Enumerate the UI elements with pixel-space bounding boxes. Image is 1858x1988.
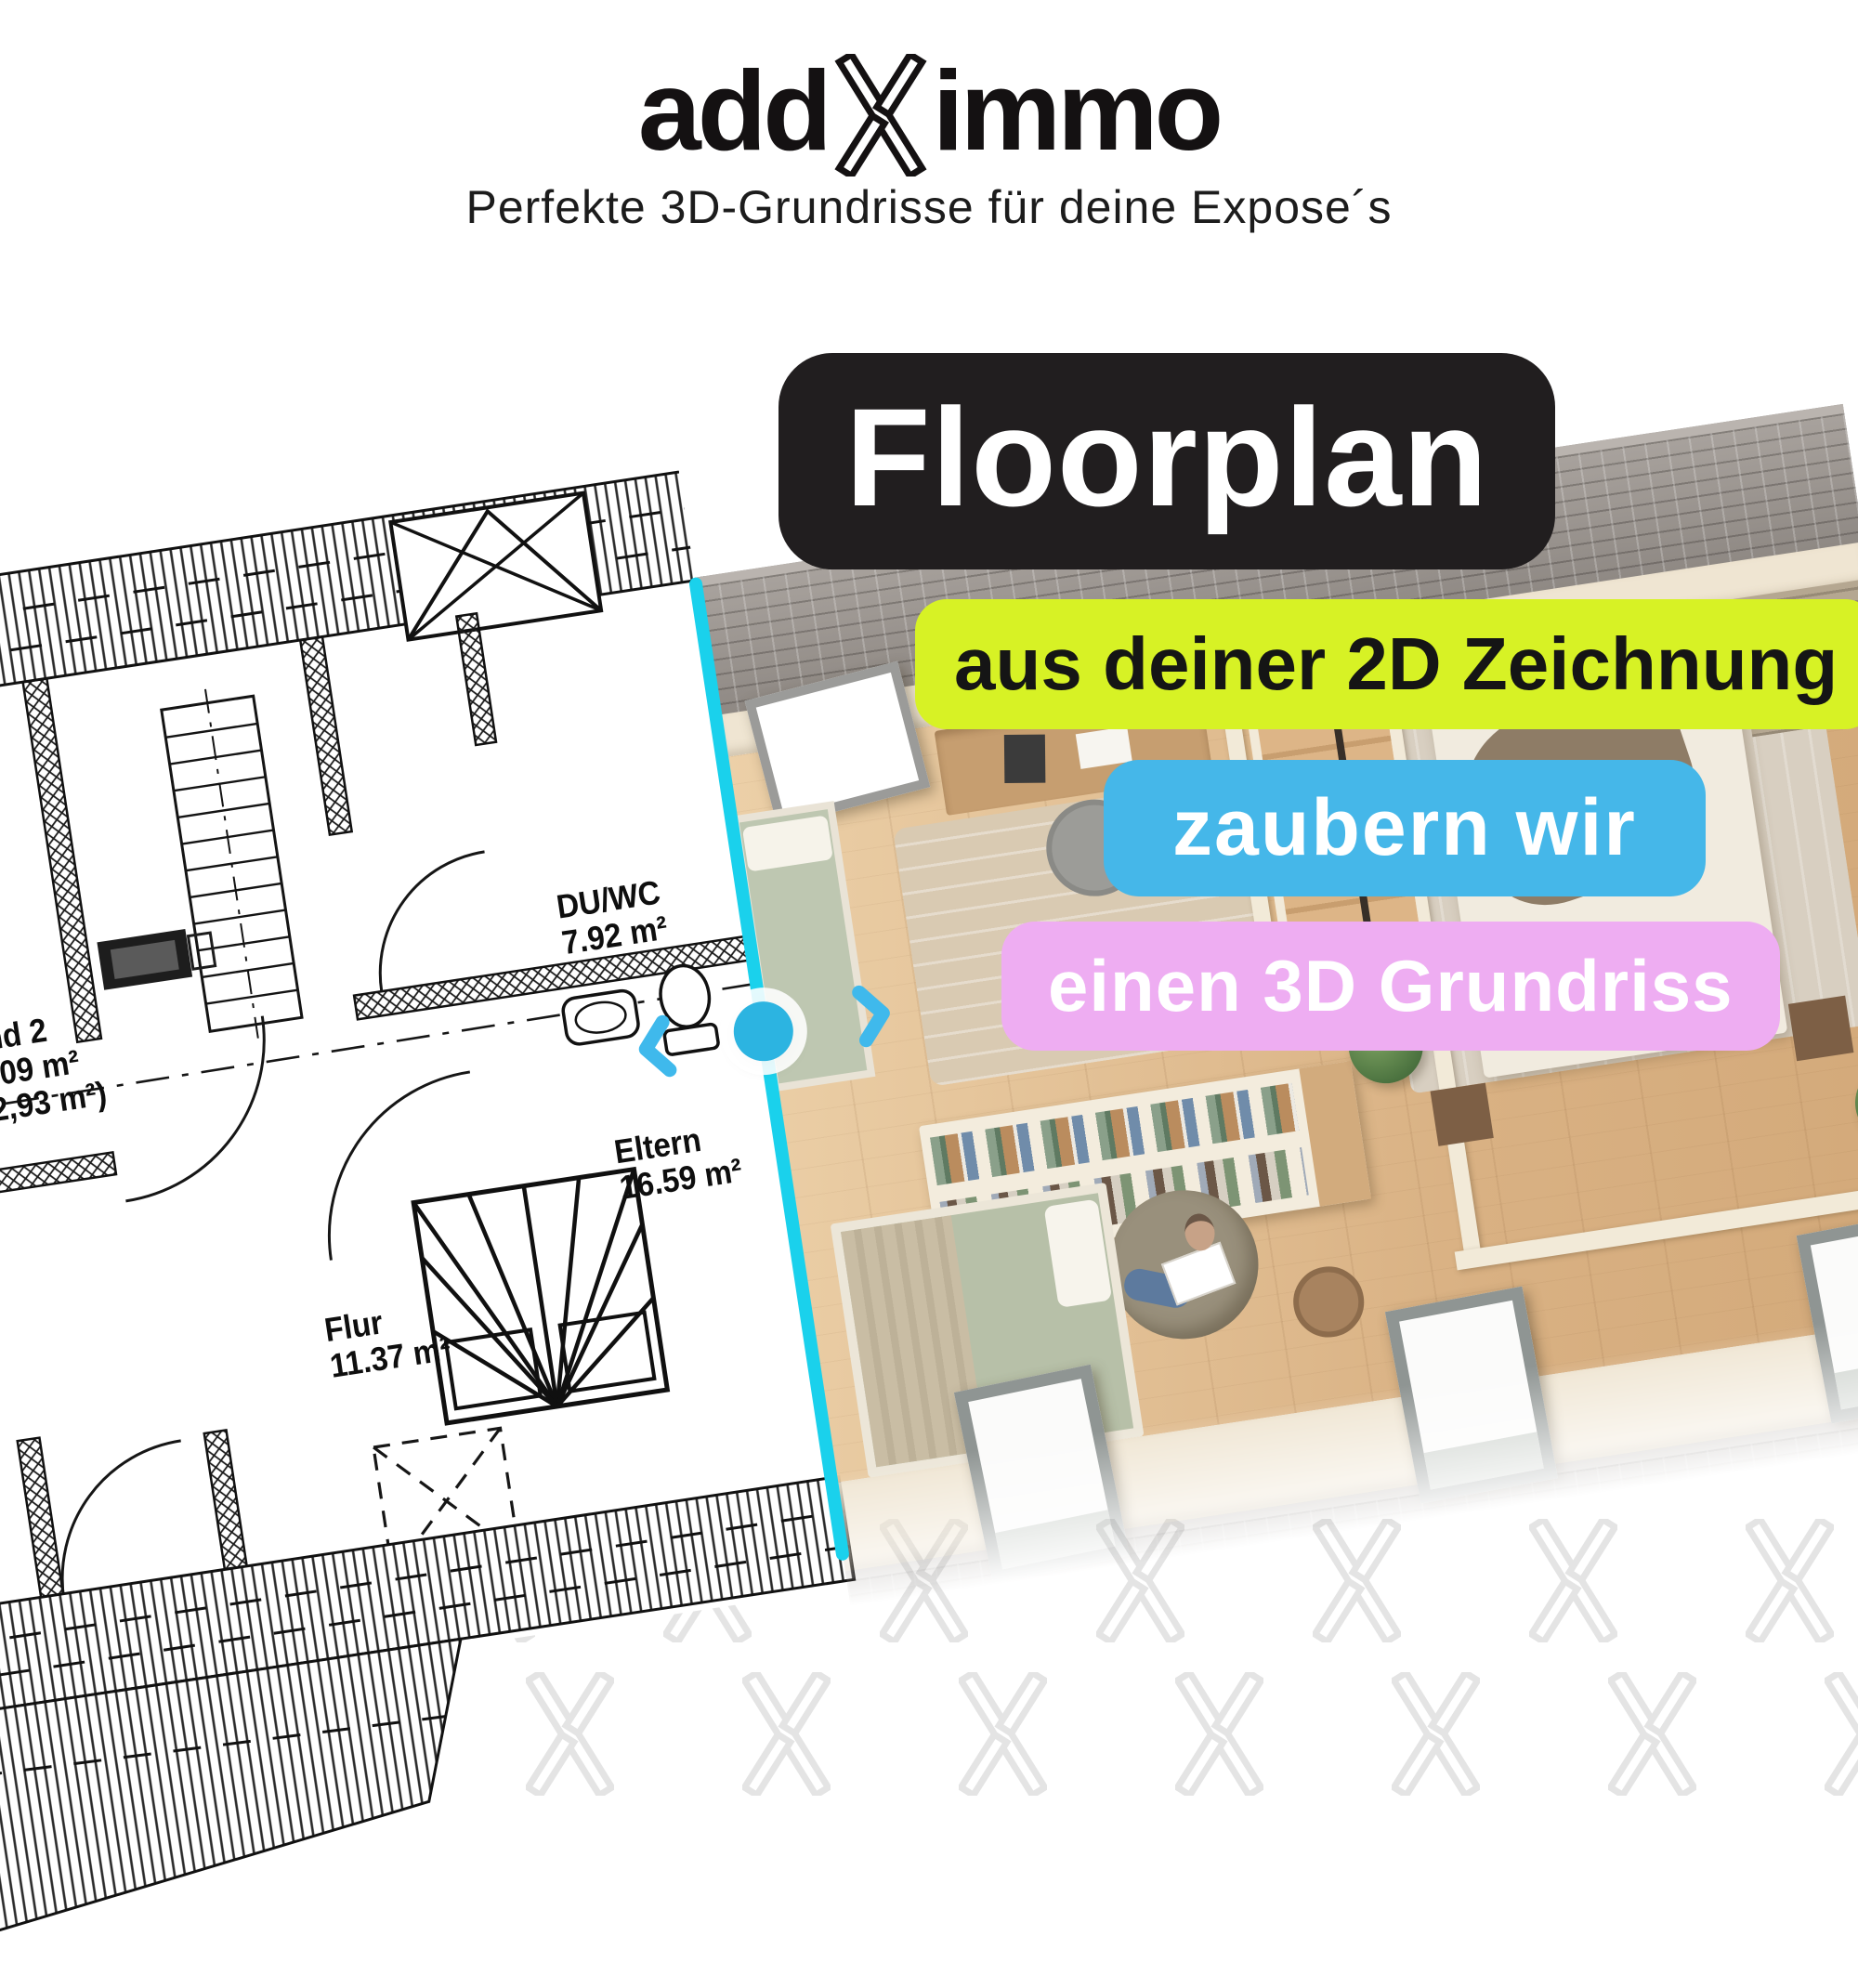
nightstand (1431, 1083, 1494, 1146)
brand-watermark-icon (959, 1672, 1047, 1796)
badge-2d-zeichnung: aus deiner 2D Zeichnung (915, 599, 1858, 729)
floorplan-title-badge: Floorplan (779, 353, 1555, 569)
header: add immo Perfekte 3D-Grundrisse für dein… (0, 37, 1858, 234)
brand-watermark-icon (1825, 1672, 1858, 1796)
brand-watermark-icon (1392, 1672, 1480, 1796)
laptop (1004, 735, 1046, 783)
room-label-duwc: DU/WC 7.92 m² (555, 874, 670, 961)
brand-watermark-icon (1175, 1672, 1263, 1796)
badge-zaubern-wir: zaubern wir (1104, 760, 1706, 896)
page: { "header": { "logo": { "part1": "add", … (0, 0, 1858, 1858)
logo: add immo (0, 37, 1858, 167)
logo-text-add: add (638, 54, 829, 167)
room-label-kind2: Kind 2 11.09 m² (12,93 m²) (0, 1005, 109, 1132)
addximmo-x-icon (834, 54, 927, 177)
badge-3d-grundriss: einen 3D Grundriss (1001, 922, 1780, 1051)
brand-watermark-icon (1608, 1672, 1696, 1796)
open-book (1161, 1242, 1236, 1306)
nightstand (1788, 996, 1854, 1062)
brand-watermark-icon (1746, 1519, 1834, 1642)
logo-text-immo: immo (933, 54, 1220, 167)
tagline: Perfekte 3D-Grundrisse für deine Expose´… (0, 180, 1858, 234)
